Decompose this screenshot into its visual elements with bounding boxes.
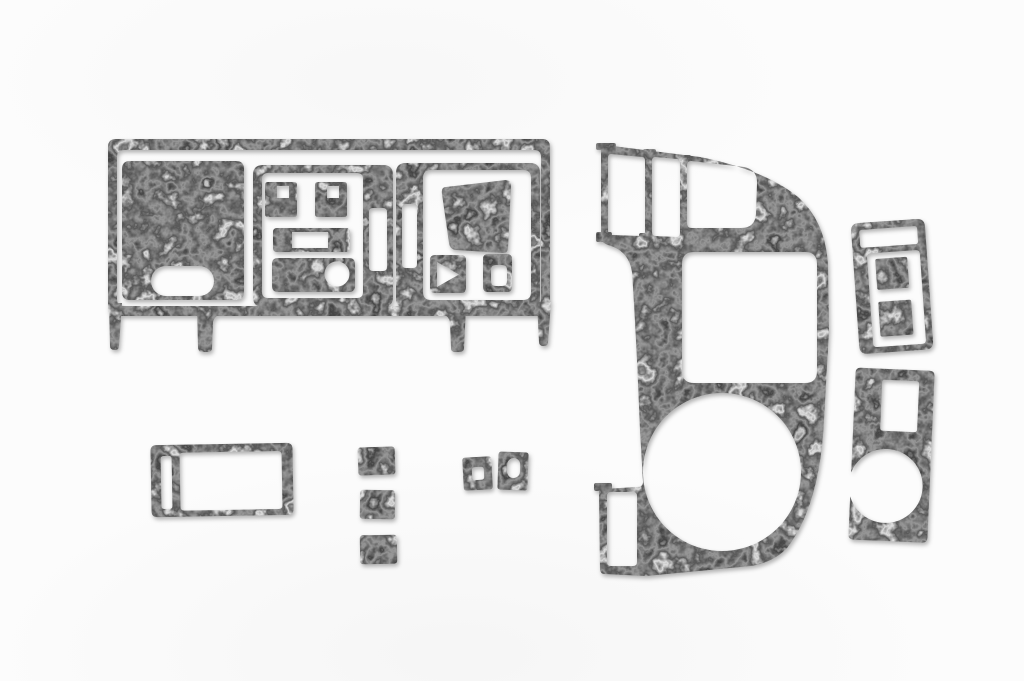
mounting-leg-4: [537, 301, 551, 346]
display-trapezoid: [442, 180, 511, 253]
switch-blank-square-2: [360, 490, 396, 520]
switch-blank-square-1: [358, 446, 396, 475]
pod-switch-blank-bottom: [878, 300, 913, 337]
vent-serif-bottom-right: [675, 238, 688, 247]
small-vent-square: [483, 254, 512, 292]
small-bezel-square-body: [462, 456, 493, 490]
mounting-leg-1: [109, 303, 122, 350]
switch-square-left: [265, 182, 297, 217]
vent-serif-top-left: [596, 143, 616, 150]
instrument-cluster-blank: [122, 161, 244, 300]
console-body: [599, 145, 829, 576]
switch-blank-square-3: [360, 535, 398, 565]
trim-kit-photo: [0, 0, 1024, 681]
small-switch-bezel-oval-hole: [497, 451, 528, 490]
vent-serif-bottom-mid: [639, 233, 651, 242]
center-console-panel: [594, 143, 829, 576]
trim-pieces-group: [108, 139, 935, 576]
upper-switch-pod-bezel: [851, 218, 934, 354]
pod-switch-blank-top: [875, 257, 909, 290]
switch-square-right: [315, 182, 347, 217]
small-bezel-oval-body: [497, 451, 528, 490]
slot-bar: [273, 228, 350, 252]
lower-console-bezel: [848, 368, 934, 543]
lower-bezel-body: [848, 368, 934, 543]
triangle-switch-square: [430, 255, 466, 293]
vent-serif-top-right: [678, 155, 691, 161]
knob-bar: [272, 258, 355, 292]
vent-serif-bottom-left: [596, 232, 612, 242]
pocket-frame-body: [150, 443, 293, 517]
pocket-trim-frame: [150, 443, 293, 517]
small-switch-bezel-square-hole: [462, 456, 493, 490]
dashboard-fascia-panel: [108, 139, 551, 352]
vent-serif-top-mid: [643, 149, 656, 155]
product-photo-stage: [0, 0, 1024, 681]
slot-serif: [594, 483, 612, 491]
